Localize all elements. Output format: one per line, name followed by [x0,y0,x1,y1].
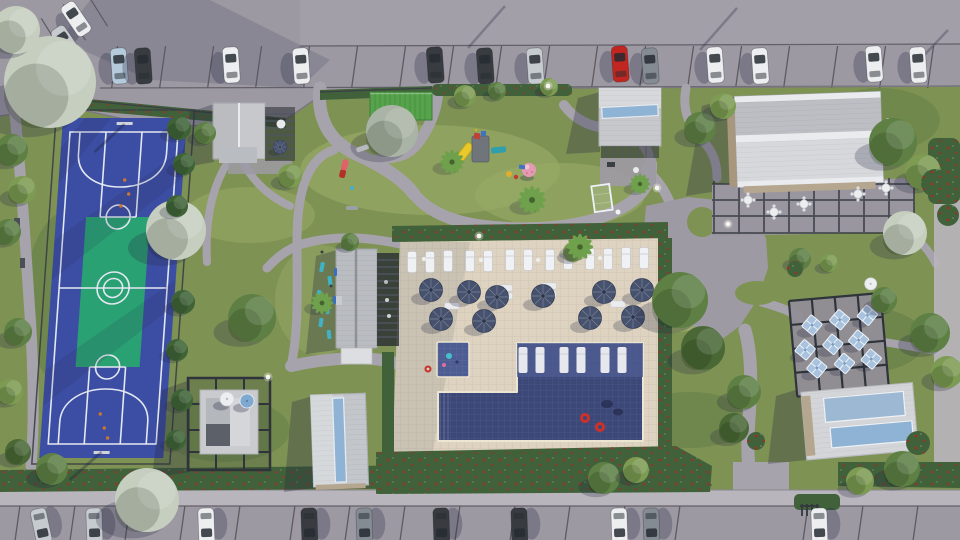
deck-lounge-chairs [408,248,649,273]
sphere-lamp [653,184,662,193]
cabana-courtyard [206,424,230,446]
pavilion-pergola [265,107,295,161]
pool-area [376,222,712,494]
soccer-ball [616,210,621,215]
amenity-building [284,393,369,492]
render-canvas [0,0,960,540]
grill [607,162,615,167]
sphere-lamp [264,373,273,382]
car [811,507,841,540]
car [643,507,673,540]
red-pool-float [580,413,590,423]
roof-skylight [333,398,347,482]
aerial-site-render [0,0,960,540]
car [511,507,541,540]
in-pool-lounger [536,347,545,373]
sphere-lamp [475,232,484,241]
car [356,507,386,540]
bench [346,206,358,210]
porch-roof [341,348,372,364]
in-pool-lounger [560,347,569,373]
play-toy [514,175,518,179]
pool-house-pergola [377,253,399,346]
patio-table [277,120,286,129]
car [433,507,463,540]
car [301,507,331,540]
car [198,507,228,540]
cabana-pergola [152,378,270,478]
soccer-goal [591,184,612,212]
sphere-lamp [724,220,733,229]
in-pool-lounger [601,347,610,373]
in-pool-lounger [519,347,528,373]
pool-toy [446,353,452,359]
pool-toy [442,363,446,367]
sphere-lamp [544,82,553,91]
roof-skylight [602,105,658,119]
car [611,507,641,540]
in-pool-lounger [618,347,627,373]
play-toy [506,171,512,177]
in-pool-lounger [577,347,586,373]
patio-table [633,167,639,173]
red-pool-float [595,422,605,432]
